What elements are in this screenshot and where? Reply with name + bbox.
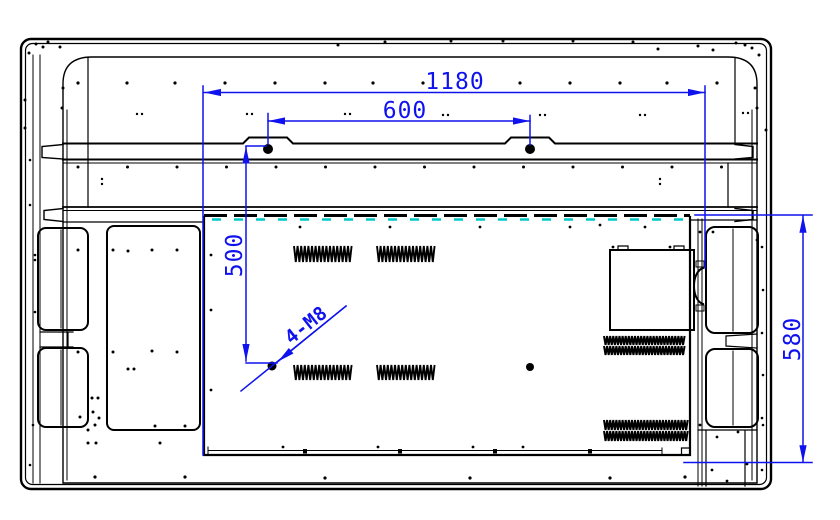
panel-hole bbox=[526, 363, 534, 371]
screw-dot bbox=[101, 183, 103, 185]
screw-dot bbox=[502, 40, 505, 43]
screw-dot bbox=[29, 464, 32, 467]
screw-dot bbox=[29, 204, 32, 207]
screw-dot bbox=[91, 397, 94, 400]
screw-dot bbox=[101, 178, 103, 180]
screw-dot bbox=[136, 113, 138, 115]
screw-dot bbox=[59, 46, 62, 49]
screw-dot bbox=[210, 309, 213, 312]
screw-dot bbox=[125, 81, 128, 84]
left-access-panel bbox=[107, 226, 200, 430]
screw-dot bbox=[176, 249, 179, 252]
screw-dot bbox=[712, 49, 715, 52]
screw-dot bbox=[683, 475, 686, 478]
screw-dot bbox=[726, 480, 729, 483]
screw-dot bbox=[644, 114, 646, 116]
screw-dot bbox=[35, 43, 38, 46]
screw-dot bbox=[669, 246, 672, 249]
screw-dot bbox=[94, 424, 97, 427]
screw-dot bbox=[569, 226, 572, 229]
screw-dot bbox=[761, 417, 764, 420]
screw-dot bbox=[210, 254, 213, 257]
dim-text-panel-height: 580 bbox=[780, 317, 806, 362]
screw-dot bbox=[251, 113, 253, 115]
screw-dot bbox=[151, 350, 154, 353]
screw-dot bbox=[273, 81, 276, 84]
screw-dot bbox=[87, 442, 90, 445]
screw-dot bbox=[712, 231, 715, 234]
dim-text-thread-callout: 4-M8 bbox=[281, 302, 332, 349]
screw-dot bbox=[421, 81, 424, 84]
screw-dot bbox=[384, 41, 387, 44]
screw-dot bbox=[47, 41, 50, 44]
vent-slot-group bbox=[294, 246, 352, 262]
screw-dot bbox=[572, 40, 575, 43]
rail-top-edge bbox=[63, 138, 757, 144]
screw-dot bbox=[742, 112, 744, 114]
screw-dot bbox=[644, 226, 647, 229]
screw-dot bbox=[61, 107, 64, 110]
screw-dot bbox=[639, 114, 641, 116]
screw-dot bbox=[472, 446, 475, 449]
rail2-left-tab bbox=[44, 209, 63, 222]
screw-dot bbox=[665, 81, 668, 84]
screw-dot bbox=[173, 81, 176, 84]
screw-dot bbox=[282, 446, 285, 449]
dim-text-overall-width: 1180 bbox=[425, 69, 484, 95]
screw-dot bbox=[539, 114, 541, 116]
screw-dot bbox=[28, 52, 31, 55]
screw-dot bbox=[756, 239, 759, 242]
screw-dot bbox=[716, 436, 719, 439]
screw-dot bbox=[210, 389, 213, 392]
screw-dot bbox=[323, 81, 326, 84]
screw-dot bbox=[744, 44, 747, 47]
screw-dot bbox=[344, 113, 346, 115]
dimension-annotations: 1180 600 500 580 4-M8 bbox=[203, 69, 812, 463]
screw-dot bbox=[621, 166, 624, 169]
screw-dot bbox=[184, 425, 187, 428]
screw-dot bbox=[442, 114, 444, 116]
vent-slot-group bbox=[604, 346, 685, 355]
screw-dot bbox=[612, 246, 615, 249]
screw-dot bbox=[34, 254, 37, 257]
screw-dot bbox=[699, 231, 702, 234]
rail-left-tab bbox=[42, 145, 63, 160]
screw-dot bbox=[747, 112, 749, 114]
screw-dot bbox=[720, 166, 723, 169]
screw-dot bbox=[77, 249, 80, 252]
screw-dot bbox=[761, 469, 764, 472]
technical-drawing: 1180 600 500 580 4-M8 bbox=[0, 0, 840, 520]
screw-dot bbox=[659, 178, 661, 180]
right-column-seams bbox=[698, 219, 702, 486]
mounting-rail-upper bbox=[42, 138, 757, 164]
ledge-joint bbox=[493, 449, 497, 454]
screw-dot bbox=[599, 224, 602, 227]
screw-dot bbox=[377, 446, 380, 449]
cad-drawing-canvas: 1180 600 500 580 4-M8 bbox=[0, 0, 840, 520]
screw-dot bbox=[761, 332, 764, 335]
screw-dot bbox=[98, 417, 101, 420]
right-side-panels bbox=[698, 219, 758, 486]
screw-dot bbox=[32, 424, 35, 427]
back-box-bottom-ledge bbox=[208, 447, 662, 455]
screw-dot bbox=[389, 226, 392, 229]
screw-dot bbox=[711, 469, 714, 472]
screw-dot bbox=[34, 259, 37, 262]
screw-dot bbox=[324, 166, 327, 169]
screw-dot bbox=[659, 183, 661, 185]
ledge-joint bbox=[398, 449, 402, 454]
screw-dot bbox=[112, 351, 115, 354]
screw-dot bbox=[77, 166, 80, 169]
screw-dot bbox=[618, 81, 621, 84]
screw-dot bbox=[42, 46, 45, 49]
screw-dot bbox=[127, 250, 130, 253]
screw-dot bbox=[758, 54, 761, 57]
screw-dot bbox=[349, 113, 351, 115]
ext-stubs-500 bbox=[246, 146, 277, 363]
screw-dot bbox=[735, 42, 738, 45]
vent-slot-group bbox=[377, 246, 435, 262]
vent-slot-group bbox=[604, 420, 688, 430]
right-panel-lower bbox=[706, 349, 758, 427]
screw-dot bbox=[450, 40, 453, 43]
screw-dot bbox=[699, 424, 702, 427]
component-box bbox=[610, 250, 694, 330]
screw-dot bbox=[77, 351, 80, 354]
screw-dot bbox=[95, 442, 98, 445]
vent-slot-group bbox=[294, 365, 352, 380]
screw-dot bbox=[371, 81, 374, 84]
screw-dot bbox=[92, 411, 95, 414]
screw-dot bbox=[715, 81, 718, 84]
screw-dot bbox=[112, 249, 115, 252]
screw-dot bbox=[479, 226, 482, 229]
screw-dot bbox=[141, 113, 143, 115]
screw-dot bbox=[737, 431, 740, 434]
screw-dot bbox=[473, 166, 476, 169]
screw-dot bbox=[447, 114, 449, 116]
right-panel-upper bbox=[706, 227, 758, 333]
vent-slot-group bbox=[604, 431, 688, 441]
screw-dot bbox=[765, 129, 768, 132]
screw-dot bbox=[24, 127, 27, 130]
rail-right-tab bbox=[735, 145, 753, 160]
screw-dot bbox=[374, 166, 377, 169]
screw-dot bbox=[93, 475, 96, 478]
screw-dot bbox=[29, 159, 32, 162]
back-box bbox=[204, 216, 704, 456]
screw-dot bbox=[608, 476, 611, 479]
screw-dot bbox=[751, 47, 754, 50]
screw-dot bbox=[246, 113, 248, 115]
screw-dot bbox=[762, 424, 765, 427]
screw-dot bbox=[762, 374, 765, 377]
screw-dot bbox=[572, 166, 575, 169]
screw-dot bbox=[323, 476, 326, 479]
screw-dot bbox=[423, 166, 426, 169]
screw-dot bbox=[24, 99, 27, 102]
screw-dot bbox=[87, 429, 90, 432]
screw-dot bbox=[127, 368, 130, 371]
ventilation-slots bbox=[294, 246, 688, 441]
screw-dot bbox=[632, 41, 635, 44]
screw-dot bbox=[522, 446, 525, 449]
screw-dot bbox=[183, 475, 186, 478]
ledge-joint bbox=[588, 449, 592, 454]
screw-dot bbox=[176, 166, 179, 169]
dim-text-hole-spacing-h: 600 bbox=[383, 98, 428, 124]
screw-dot bbox=[62, 87, 65, 90]
vent-slot-group bbox=[604, 336, 685, 345]
right-bottom-structure bbox=[698, 430, 757, 486]
screw-dot bbox=[697, 45, 700, 48]
screw-dot bbox=[299, 226, 302, 229]
screw-dot bbox=[76, 81, 79, 84]
screw-dot bbox=[275, 166, 278, 169]
screw-dot bbox=[159, 442, 162, 445]
screw-dot bbox=[154, 425, 157, 428]
screw-dot bbox=[34, 311, 37, 314]
screw-dot bbox=[756, 107, 759, 110]
screw-dot bbox=[468, 476, 471, 479]
screw-dot bbox=[671, 166, 674, 169]
screw-dot bbox=[225, 166, 228, 169]
screw-dot bbox=[223, 81, 226, 84]
ledge-joint bbox=[303, 449, 307, 454]
screw-dot bbox=[657, 48, 660, 51]
screw-dot bbox=[762, 289, 765, 292]
screw-dot bbox=[337, 44, 340, 47]
screw-dot bbox=[522, 166, 525, 169]
screw-dot bbox=[568, 81, 571, 84]
screw-dot bbox=[126, 166, 129, 169]
screw-dot bbox=[176, 351, 179, 354]
screw-dot bbox=[761, 246, 764, 249]
screw-dot bbox=[544, 114, 546, 116]
screw-dot bbox=[151, 249, 154, 252]
left-speaker-connector bbox=[40, 332, 73, 347]
screw-dot bbox=[754, 87, 757, 90]
screw-dot bbox=[133, 368, 136, 371]
vent-slot-group bbox=[377, 365, 435, 380]
screw-dot bbox=[518, 81, 521, 84]
screw-dot bbox=[97, 397, 100, 400]
dim-text-hole-spacing-v: 500 bbox=[222, 233, 248, 278]
screw-dot bbox=[79, 416, 82, 419]
